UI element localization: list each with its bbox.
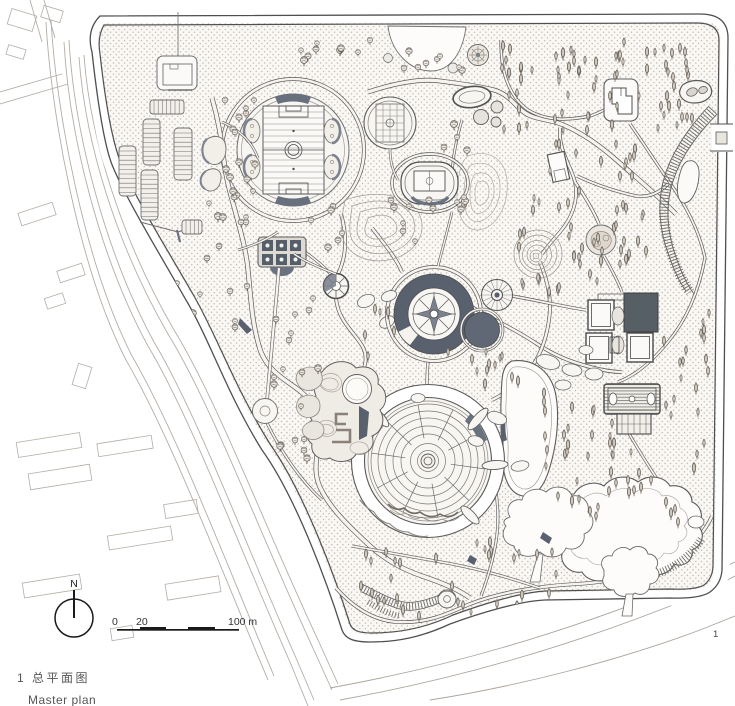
- svg-text:100 m: 100 m: [228, 616, 257, 628]
- svg-text:1 总平面图: 1 总平面图: [17, 671, 90, 685]
- svg-text:Master plan: Master plan: [28, 693, 96, 706]
- svg-text:N: N: [70, 578, 78, 590]
- svg-text:0: 0: [112, 616, 118, 628]
- svg-text:20: 20: [136, 616, 148, 628]
- svg-text:1: 1: [713, 629, 718, 640]
